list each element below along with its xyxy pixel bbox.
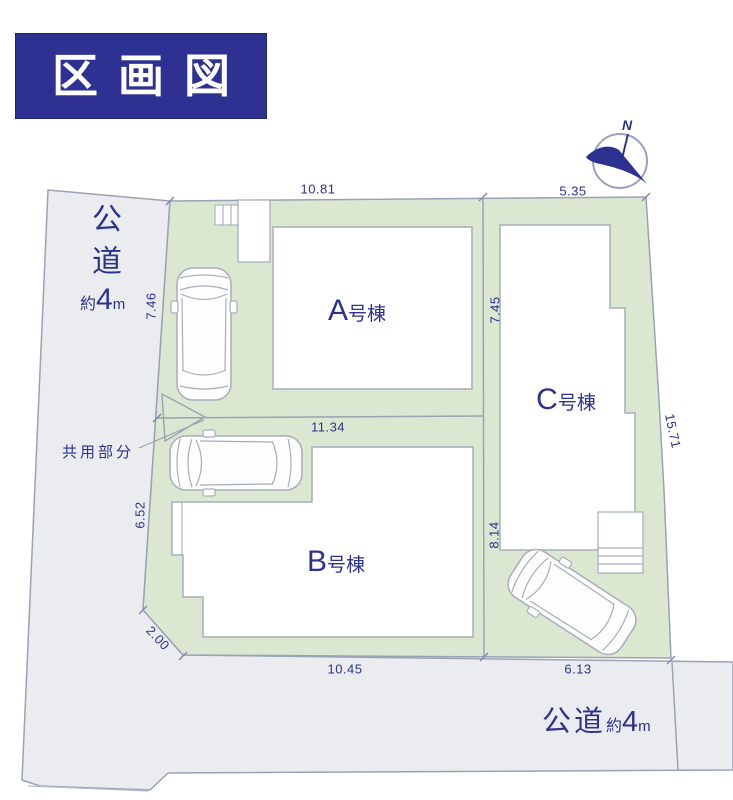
building-a-porch <box>238 200 270 262</box>
road-left-unit: m <box>113 296 126 313</box>
dimension-left-lower: 6.52 <box>133 501 148 528</box>
road-bottom-unit: m <box>638 718 651 735</box>
dimension-b-c-boundary: 8.14 <box>487 521 502 548</box>
road-left-width-label: 約4m <box>80 283 125 317</box>
road-left-label: 公道 <box>93 203 125 287</box>
building-a-steps <box>215 205 238 225</box>
car-icon <box>170 430 302 496</box>
page-title: 区画図 <box>15 33 267 119</box>
building-a-label: A号棟 <box>328 294 386 328</box>
road-bottom-width-value: 4 <box>622 706 638 738</box>
dimension-a-c-boundary: 7.45 <box>488 296 503 323</box>
dimension-left-upper: 7.46 <box>144 292 159 319</box>
road-left-approx: 約 <box>80 296 96 313</box>
dimension-top-a: 10.81 <box>300 182 335 197</box>
compass-icon <box>586 134 647 188</box>
road-left-width-value: 4 <box>96 283 113 316</box>
compass-north-label: N <box>622 117 632 133</box>
dimension-bottom-b: 10.45 <box>327 662 362 677</box>
dimension-top-c: 5.35 <box>559 184 586 199</box>
road-bottom-approx: 約 <box>606 718 622 735</box>
building-c-label: C号棟 <box>536 383 596 417</box>
common-area-label: 共用部分 <box>62 441 134 462</box>
road-bottom-name: 公道 <box>542 706 606 738</box>
boundary-a-c <box>483 197 484 657</box>
dimension-b-top: 11.34 <box>311 420 345 435</box>
car-icon <box>171 268 237 400</box>
dimension-bottom-c: 6.13 <box>564 662 591 677</box>
road-bottom-label: 公道約4m <box>542 698 651 740</box>
building-b-label: B号棟 <box>307 545 365 579</box>
page-title-text: 区画図 <box>52 53 250 99</box>
plot-map-page: 区画図 N 公道 約4m 公道約4m 共用部分 A号棟 B号棟 C号棟 10.8… <box>0 0 733 800</box>
building-c-entrance-steps <box>598 512 643 573</box>
